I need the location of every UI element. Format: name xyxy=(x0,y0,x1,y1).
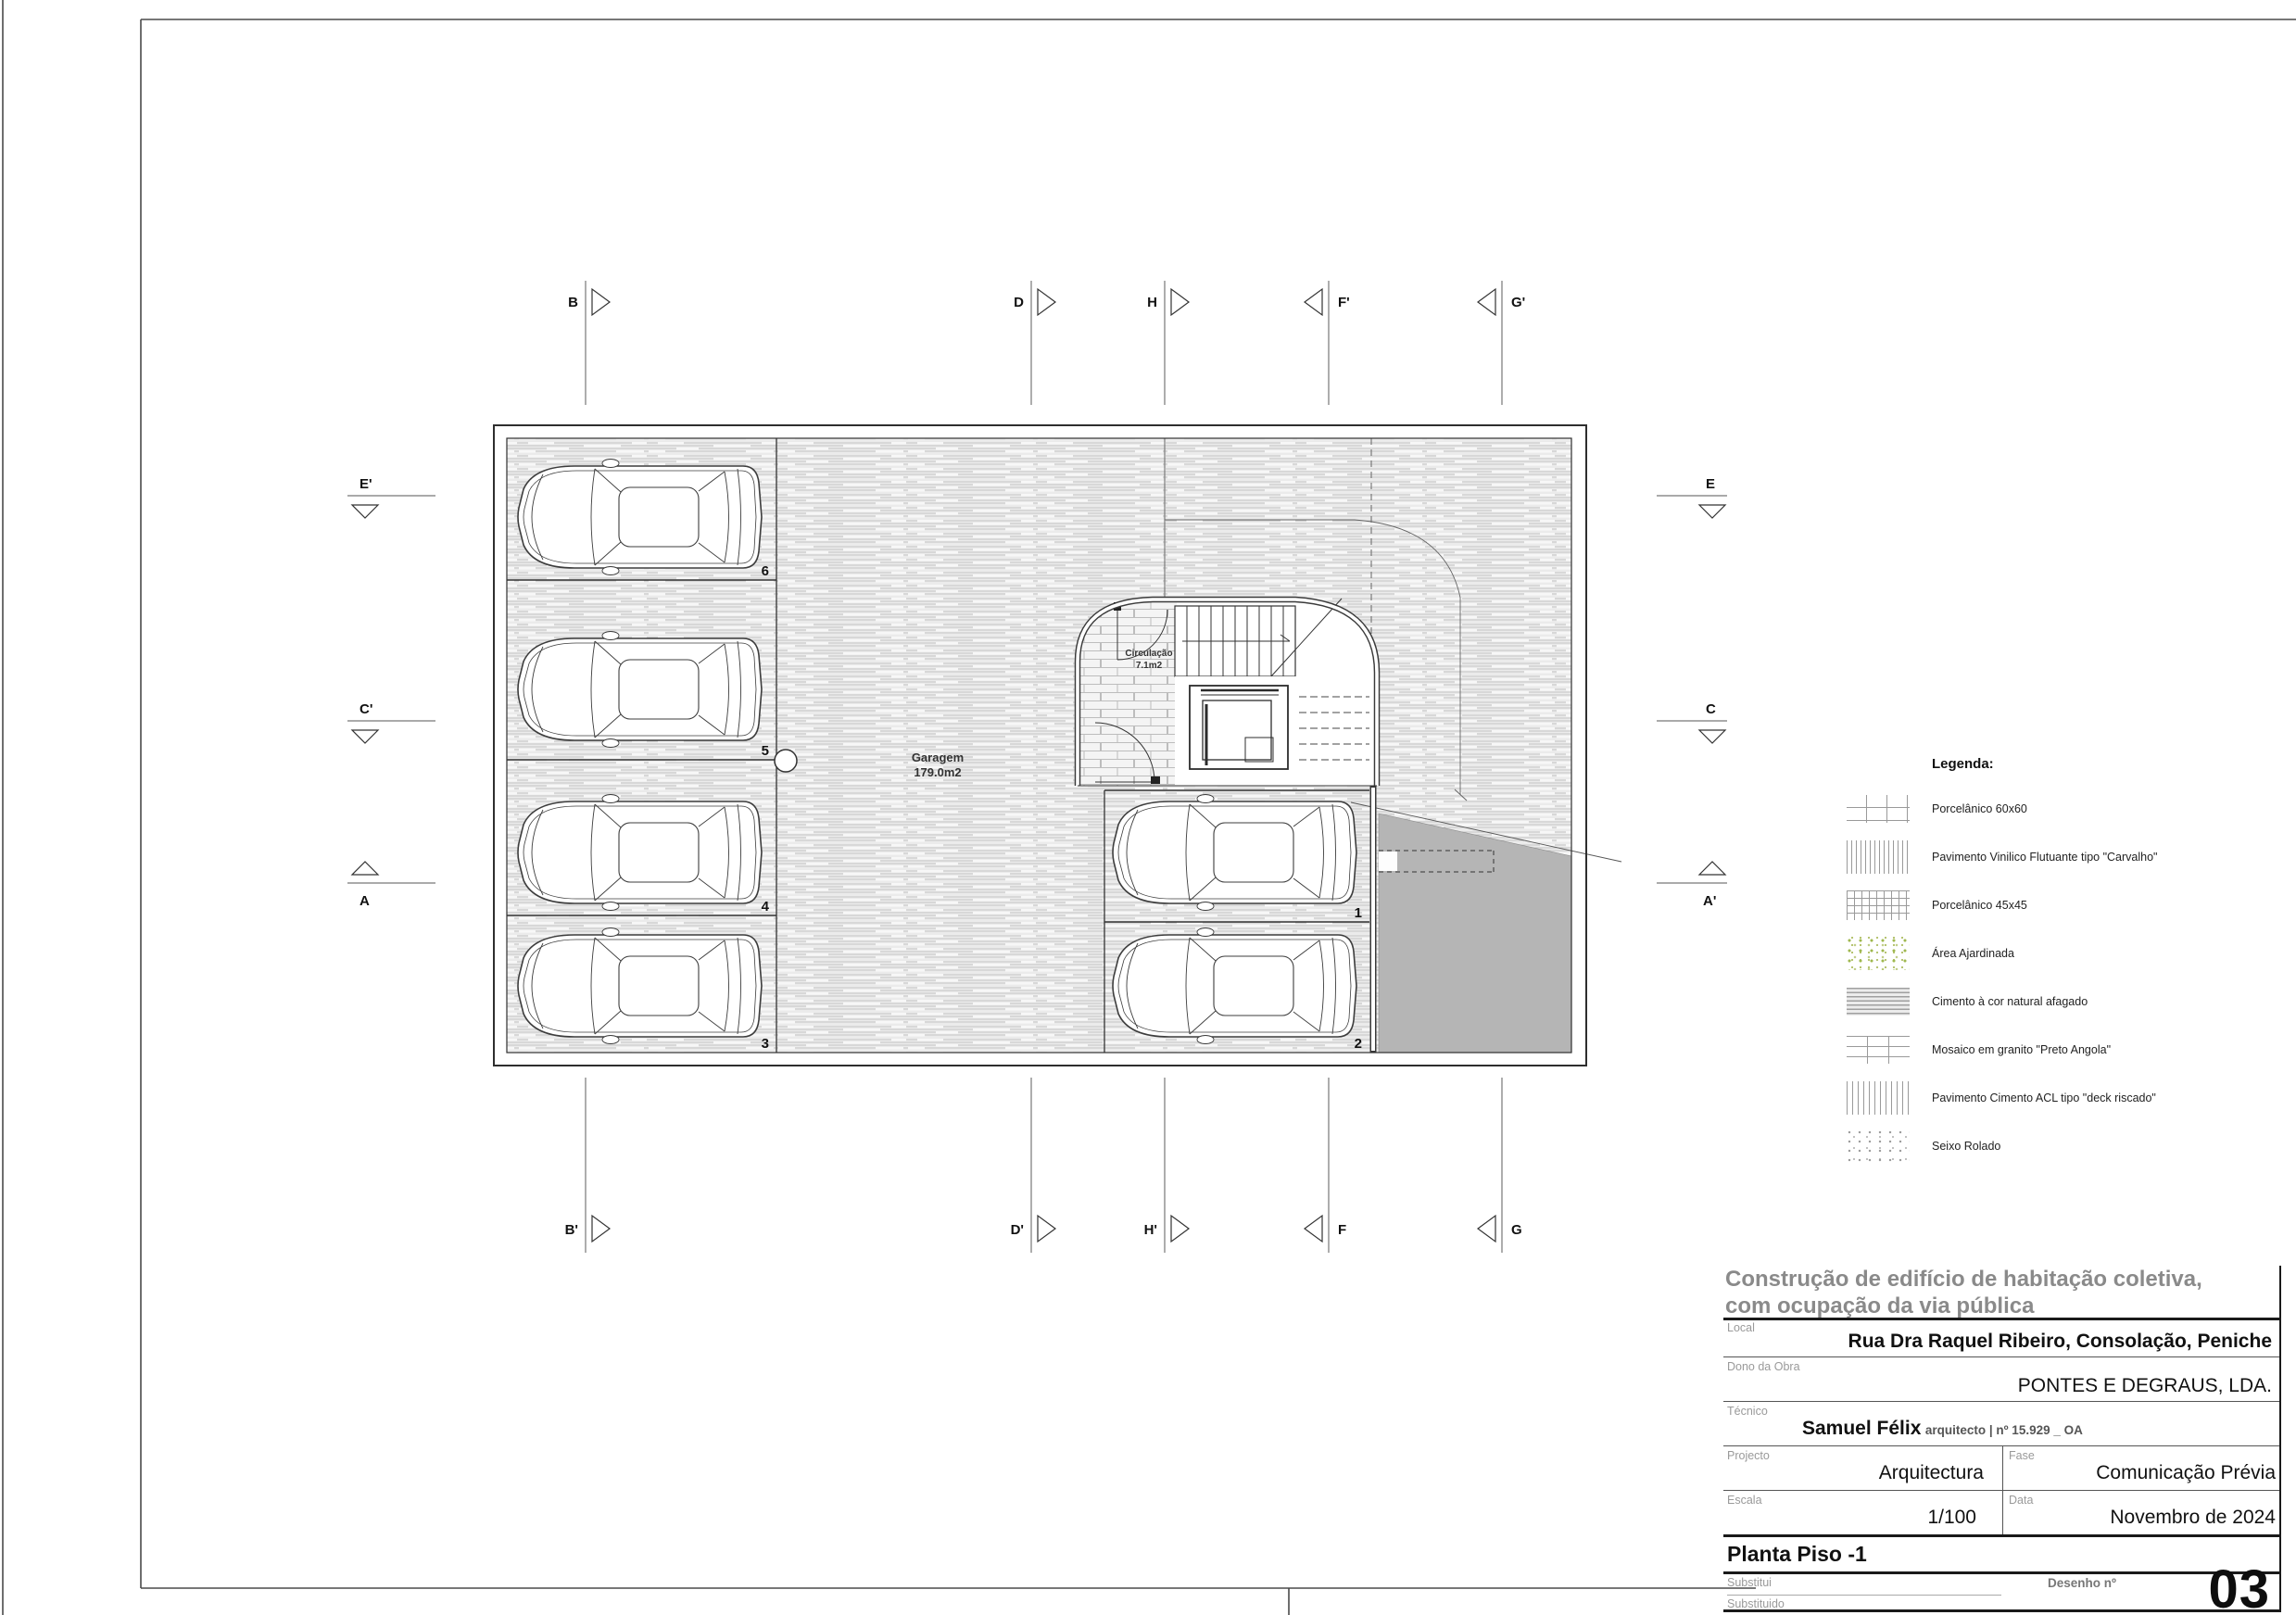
section-label-G: G xyxy=(1511,1222,1522,1238)
car-stall-3 xyxy=(518,928,762,1044)
section-label-D: D xyxy=(1014,295,1024,310)
circulation-tiled-floor xyxy=(1078,599,1177,788)
legend-item-label: Pavimento Cimento ACL tipo "deck riscado… xyxy=(1932,1091,2156,1104)
car-stall-6 xyxy=(518,460,762,575)
legend-item: Mosaico em granito "Preto Angola" xyxy=(1842,1026,2287,1074)
section-label-A2: A' xyxy=(1703,893,1716,909)
legend-item: Seixo Rolado xyxy=(1842,1122,2287,1170)
legend-item-label: Pavimento Vinilico Flutuante tipo "Carva… xyxy=(1932,851,2158,864)
stair-core xyxy=(1078,599,1377,788)
tecnico-label: Técnico xyxy=(1727,1405,1768,1418)
section-label-C2: C' xyxy=(360,701,372,717)
section-label-B2: B' xyxy=(565,1222,578,1238)
section-label-B: B xyxy=(568,295,578,310)
projecto-label: Projecto xyxy=(1727,1449,1770,1462)
section-label-C: C xyxy=(1706,701,1716,717)
section-label-F: F xyxy=(1338,1222,1346,1238)
stall-number-1: 1 xyxy=(1355,905,1362,921)
stall-number-6: 6 xyxy=(762,563,769,579)
vertical-lines-swatch-icon xyxy=(1847,1081,1910,1115)
section-label-A: A xyxy=(360,893,370,909)
garage-area-label: 179.0m2 xyxy=(914,765,961,779)
project-title: Construção de edifício de habitação cole… xyxy=(1725,1266,2277,1319)
entrance-ramp xyxy=(1351,802,1621,1053)
tecnico-value: Samuel Félix xyxy=(1802,1418,1921,1439)
section-label-H2: H' xyxy=(1144,1222,1157,1238)
section-label-F2: F' xyxy=(1338,295,1350,310)
section-label-E2: E' xyxy=(360,476,372,492)
gray-dots-swatch-icon xyxy=(1847,1129,1910,1163)
legend-item: Porcelânico 60x60 xyxy=(1842,785,2287,833)
legend-item: Porcelânico 45x45 xyxy=(1842,881,2287,929)
project-title-line1: Construção de edifício de habitação cole… xyxy=(1725,1266,2277,1293)
legend-item-label: Porcelânico 45x45 xyxy=(1932,899,2027,912)
section-label-D2: D' xyxy=(1011,1222,1024,1238)
escala-label: Escala xyxy=(1727,1494,1762,1507)
section-label-E: E xyxy=(1706,476,1715,492)
legend-title: Legenda: xyxy=(1932,756,2287,772)
legend-item: Cimento à cor natural afagado xyxy=(1842,978,2287,1026)
legend-item-label: Porcelânico 60x60 xyxy=(1932,802,2027,815)
data-label: Data xyxy=(2009,1494,2033,1507)
section-label-G2: G' xyxy=(1511,295,1525,310)
section-label-H: H xyxy=(1147,295,1157,310)
stall-number-2: 2 xyxy=(1355,1036,1362,1052)
car-stall-4 xyxy=(518,795,762,911)
circulation-area-label: 7.1m2 xyxy=(1136,661,1163,671)
column-circle xyxy=(775,750,797,772)
car-stall-1 xyxy=(1113,795,1356,911)
car-stall-5 xyxy=(518,632,762,748)
dono-da-obra-value: PONTES E DEGRAUS, LDA. xyxy=(1723,1375,2272,1397)
grid-small-swatch-icon xyxy=(1847,890,1910,920)
desenho-number: 03 xyxy=(1723,1558,2270,1615)
local-value: Rua Dra Raquel Ribeiro, Consolação, Peni… xyxy=(1723,1331,2272,1353)
legend-item-label: Área Ajardinada xyxy=(1932,947,2014,960)
legend: Legenda: Porcelânico 60x60 Pavimento Vin… xyxy=(1842,756,2287,1170)
stall-number-4: 4 xyxy=(762,899,770,915)
grid-large-swatch-icon xyxy=(1847,795,1910,823)
drawing-sheet: Garagem 179.0m2 Circulação 7.1m2 6 5 4 3… xyxy=(0,0,2296,1615)
legend-item-label: Cimento à cor natural afagado xyxy=(1932,995,2088,1008)
garage-name-label: Garagem xyxy=(912,751,964,764)
circulation-name-label: Circulação xyxy=(1125,649,1172,659)
fase-label: Fase xyxy=(2009,1449,2035,1462)
horizontal-strokes-swatch-icon xyxy=(1847,988,1910,1016)
car-stall-2 xyxy=(1113,928,1356,1044)
dono-da-obra-label: Dono da Obra xyxy=(1727,1360,1800,1373)
fase-value: Comunicação Prévia xyxy=(2003,1462,2276,1484)
legend-item-label: Mosaico em granito "Preto Angola" xyxy=(1932,1043,2111,1056)
legend-item: Área Ajardinada xyxy=(1842,929,2287,978)
legend-item: Pavimento Vinilico Flutuante tipo "Carva… xyxy=(1842,833,2287,881)
data-value: Novembro de 2024 xyxy=(2003,1507,2276,1529)
title-block: Construção de edifício de habitação cole… xyxy=(1723,1266,2281,1612)
green-dots-swatch-icon xyxy=(1847,937,1910,970)
legend-item: Pavimento Cimento ACL tipo "deck riscado… xyxy=(1842,1074,2287,1122)
escala-value: 1/100 xyxy=(1723,1507,1976,1529)
stall-number-3: 3 xyxy=(762,1036,769,1052)
brick-swatch-icon xyxy=(1847,1036,1910,1064)
tecnico-suffix: arquitecto | nº 15.929 _ OA xyxy=(1925,1423,2083,1437)
vertical-lines-dense-swatch-icon xyxy=(1847,840,1910,874)
stall-number-5: 5 xyxy=(762,743,769,759)
legend-item-label: Seixo Rolado xyxy=(1932,1140,2000,1153)
projecto-value: Arquitectura xyxy=(1723,1462,1984,1484)
project-title-line2: com ocupação da via pública xyxy=(1725,1293,2277,1319)
